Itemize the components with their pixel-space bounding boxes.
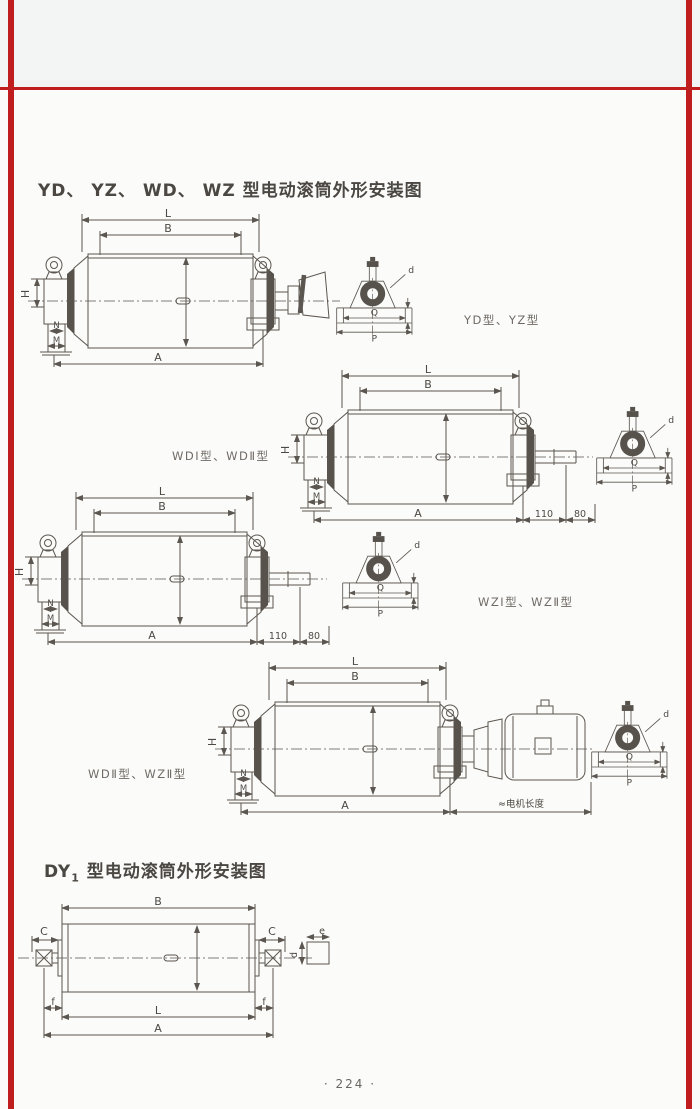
dim-label-f-right: f: [262, 997, 266, 1008]
dim-label-l: L: [165, 208, 172, 220]
caption-wz1-wz2: WZⅠ型、WZⅡ型: [478, 594, 574, 610]
dim-label-f-left: f: [51, 997, 55, 1008]
dim-label-110: 110: [535, 509, 553, 520]
dim-label-p: P: [372, 333, 378, 344]
dim-label-h: H: [13, 568, 26, 576]
dim-label-b: B: [154, 896, 162, 908]
dim-label-a: A: [154, 351, 162, 364]
drawing-yd-yz-pedestal-side-view: d Q P: [330, 256, 422, 344]
dim-label-q: Q: [377, 582, 384, 593]
dim-label-a: A: [148, 629, 156, 642]
drawing-yd-yz-front-view: L B H N M A: [18, 208, 348, 373]
dim-label-q: Q: [631, 457, 638, 468]
dim-label-80: 80: [574, 509, 586, 520]
dim-label-d: d: [414, 540, 420, 551]
dim-label-n: N: [47, 599, 53, 609]
dim-label-n: N: [53, 321, 59, 331]
dim-label-c-right: C: [268, 925, 276, 938]
dim-label-l: L: [352, 656, 359, 668]
title-dy1-subscript: 1: [71, 871, 80, 884]
caption-wd1-wd2: WDⅠ型、WDⅡ型: [172, 448, 270, 464]
dim-label-l: L: [159, 486, 166, 498]
dim-label-l: L: [155, 1004, 162, 1017]
page-border-right: [686, 0, 692, 1109]
section-title-dy1: DY1 型电动滚筒外形安装图: [44, 857, 267, 884]
caption-yd-yz: YD型、YZ型: [464, 312, 540, 328]
page-number: · 224 ·: [0, 1077, 700, 1091]
dim-label-b: B: [164, 222, 172, 235]
drawing-wz1-wz2-front-view: L B H N M A 110 80: [12, 486, 342, 651]
caption-wd2-wz2: WDⅡ型、WZⅡ型: [88, 766, 187, 782]
dim-label-a: A: [341, 799, 349, 812]
dim-label-d: d: [408, 265, 414, 276]
dim-label-p: P: [378, 608, 384, 619]
dim-label-q: Q: [626, 751, 633, 762]
dim-label-h: H: [19, 290, 32, 298]
dim-label-p: P: [627, 777, 633, 788]
title-dy1-prefix: DY: [44, 862, 71, 882]
section-title-yd-yz-wd-wz: YD、 YZ、 WD、 WZ 型电动滚筒外形安装图: [38, 176, 423, 201]
drawing-wd2-wz2-front-view-with-motor: L B H N M A ≈电机长度: [205, 656, 600, 824]
dim-label-q: Q: [371, 307, 378, 318]
dim-label-m: M: [240, 784, 247, 794]
dim-label-m: M: [53, 336, 60, 346]
drawing-wd2-wz2-pedestal-side-view: d Q P: [585, 700, 677, 788]
catalog-page: YD、 YZ、 WD、 WZ 型电动滚筒外形安装图: [0, 0, 700, 1109]
dim-label-a: A: [154, 1022, 162, 1035]
dim-label-a: A: [414, 507, 422, 520]
drawing-dy1-front-view: B C C f f L A e d: [12, 896, 342, 1058]
dim-label-motor-length: ≈电机长度: [498, 798, 544, 810]
drawing-wd-pedestal-side-view: d Q P: [590, 406, 682, 494]
dim-label-110: 110: [269, 631, 287, 642]
dim-label-m: M: [47, 614, 54, 624]
dim-label-d: d: [289, 952, 300, 958]
dim-label-l: L: [425, 364, 432, 376]
dim-label-b: B: [424, 378, 432, 391]
dim-label-d: d: [663, 709, 669, 720]
dim-label-b: B: [351, 670, 359, 683]
header-rule: [0, 87, 700, 90]
title-dy1-rest: 型电动滚筒外形安装图: [80, 862, 267, 882]
dim-label-c-left: C: [40, 925, 48, 938]
dim-label-h: H: [206, 738, 219, 746]
dim-label-n: N: [240, 769, 246, 779]
page-top-margin: [0, 0, 700, 87]
dim-label-e: e: [319, 926, 325, 937]
dim-label-p: P: [632, 483, 638, 494]
dim-label-d: d: [668, 415, 674, 426]
dim-label-b: B: [158, 500, 166, 513]
dim-label-80: 80: [308, 631, 320, 642]
drawing-wz-pedestal-side-view: d Q P: [336, 531, 428, 619]
dim-label-h: H: [279, 446, 292, 454]
